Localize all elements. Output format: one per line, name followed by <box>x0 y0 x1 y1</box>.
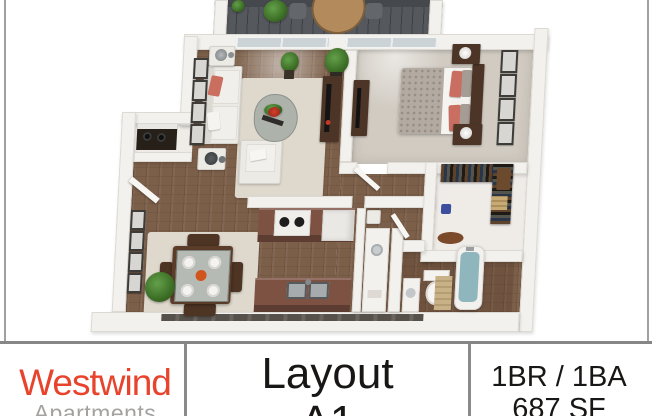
brand-name: Westwind <box>6 364 184 401</box>
storage-box <box>496 168 511 190</box>
kitchen-sink <box>308 282 329 299</box>
bathtub-water <box>458 252 480 302</box>
specs-block: 1BR / 1BA 687 SF <box>471 344 647 416</box>
spec-beds-baths: 1BR / 1BA <box>471 361 647 393</box>
wall-kitchen-north <box>247 196 353 208</box>
patio-chair <box>365 3 383 19</box>
layout-code: A1 <box>187 398 468 416</box>
closet-item <box>441 204 452 214</box>
framed-art <box>193 58 209 79</box>
dining-chair <box>183 303 216 316</box>
patio-chair <box>289 3 307 19</box>
bedroom-sliding-door <box>345 37 438 48</box>
framed-art <box>128 252 144 272</box>
framed-art <box>127 273 143 293</box>
wall-nook-bottom <box>134 152 193 162</box>
framed-art <box>500 50 518 73</box>
living-sliding-door <box>235 37 330 48</box>
wall-bathroom-north <box>403 240 426 252</box>
refrigerator <box>321 210 355 241</box>
framed-art <box>499 74 517 97</box>
info-bar: Westwind Apartments Layout A1 1BR / 1BA … <box>0 341 652 416</box>
linen-cabinet <box>366 210 381 224</box>
brand-subtitle: Apartments <box>6 401 184 416</box>
spec-area: 687 SF <box>471 393 647 416</box>
towel <box>367 290 381 298</box>
floorplan-image <box>80 0 556 341</box>
balcony-wall-right <box>428 0 443 36</box>
tub-faucet <box>466 247 474 251</box>
bath-mat <box>434 276 453 310</box>
framed-art <box>129 231 145 251</box>
bathroom-vanity <box>362 228 390 312</box>
layout-title: Layout <box>187 350 468 398</box>
floorplan-card: Westwind Apartments Layout A1 1BR / 1BA … <box>0 0 652 416</box>
kitchen-sink <box>286 282 307 299</box>
bed-blanket <box>398 68 446 134</box>
nook-counter-edge <box>137 124 177 129</box>
plant-pot <box>284 70 294 79</box>
framed-art <box>191 102 207 123</box>
brand-block: Westwind Apartments <box>6 344 184 416</box>
framed-art <box>496 122 514 145</box>
framed-art <box>189 124 205 145</box>
framed-art <box>192 80 208 101</box>
balcony-wall-left <box>213 0 228 36</box>
basket <box>491 196 508 210</box>
framed-art <box>130 210 146 230</box>
white-throw-pillow <box>207 111 221 130</box>
framed-art <box>498 98 516 121</box>
layout-block: Layout A1 <box>187 344 468 416</box>
